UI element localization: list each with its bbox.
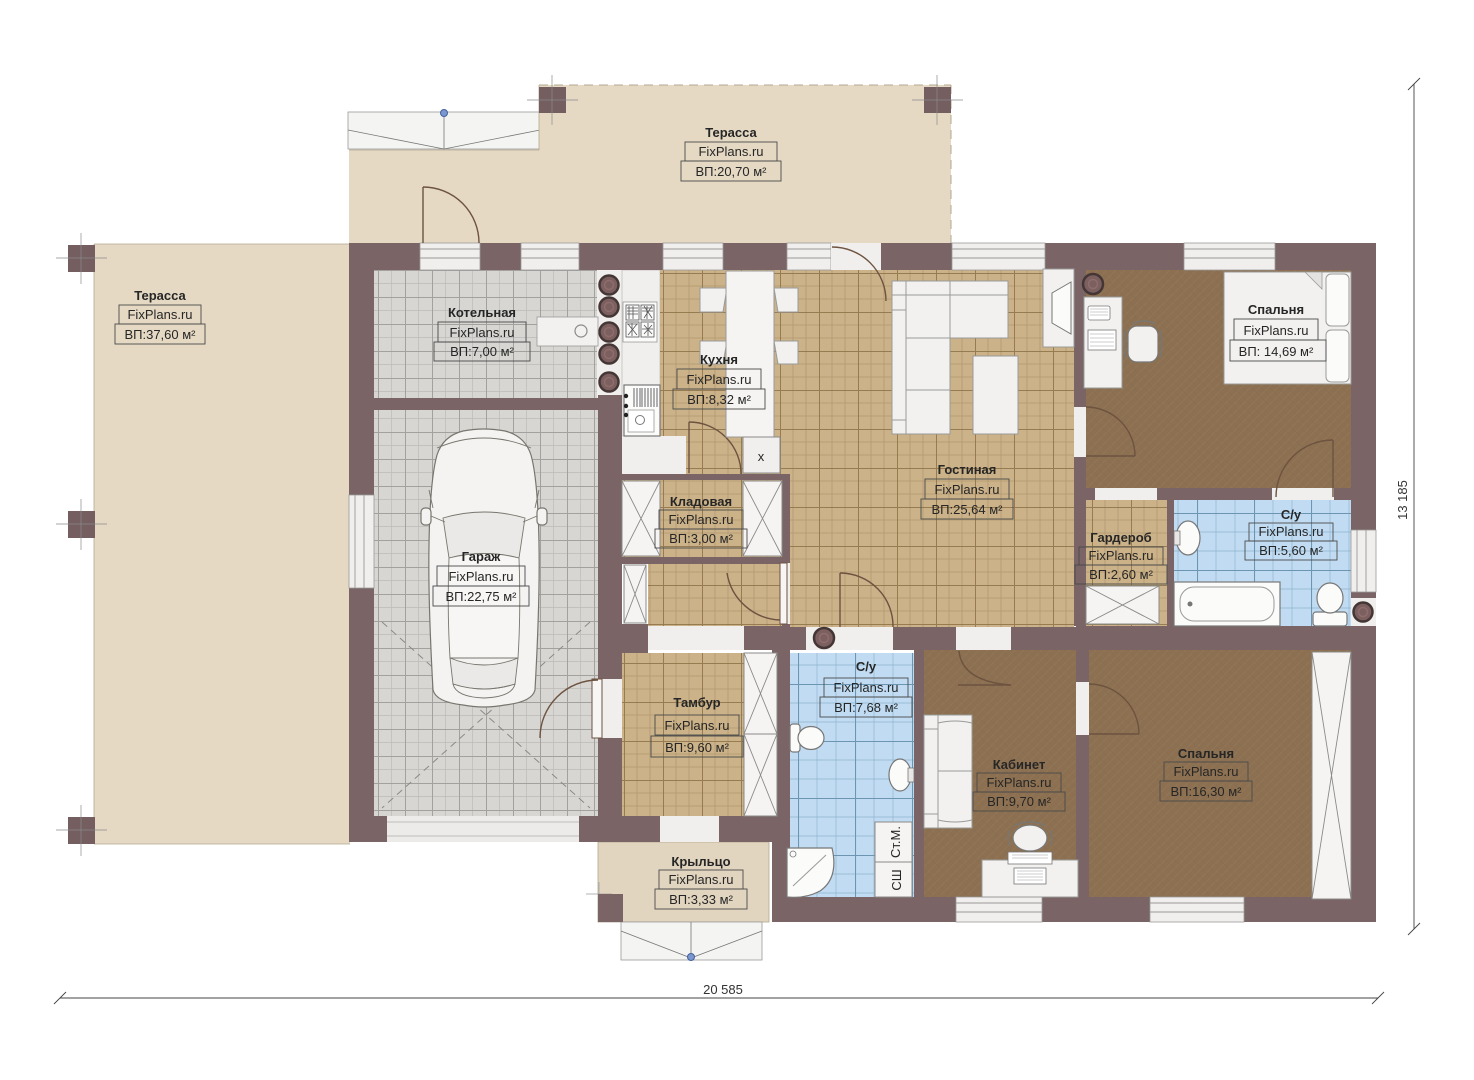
svg-text:FixPlans.ru: FixPlans.ru bbox=[986, 775, 1051, 790]
svg-text:ВП:25,64 м²: ВП:25,64 м² bbox=[931, 502, 1003, 517]
svg-text:СШ: СШ bbox=[889, 869, 904, 890]
svg-text:FixPlans.ru: FixPlans.ru bbox=[1258, 524, 1323, 539]
svg-text:FixPlans.ru: FixPlans.ru bbox=[1243, 323, 1308, 338]
svg-text:Гостиная: Гостиная bbox=[938, 462, 997, 477]
svg-text:ВП:3,00 м²: ВП:3,00 м² bbox=[669, 531, 733, 546]
svg-text:FixPlans.ru: FixPlans.ru bbox=[934, 482, 999, 497]
svg-text:ВП:8,32 м²: ВП:8,32 м² bbox=[687, 392, 751, 407]
svg-text:Гараж: Гараж bbox=[462, 549, 502, 564]
svg-text:Кладовая: Кладовая bbox=[670, 494, 732, 509]
svg-text:ВП:7,00 м²: ВП:7,00 м² bbox=[450, 344, 514, 359]
svg-text:FixPlans.ru: FixPlans.ru bbox=[448, 569, 513, 584]
svg-text:FixPlans.ru: FixPlans.ru bbox=[449, 325, 514, 340]
svg-text:FixPlans.ru: FixPlans.ru bbox=[1173, 764, 1238, 779]
svg-text:Спальня: Спальня bbox=[1248, 302, 1304, 317]
svg-text:С/у: С/у bbox=[856, 659, 877, 674]
svg-text:x: x bbox=[758, 449, 765, 464]
svg-text:Крыльцо: Крыльцо bbox=[671, 854, 730, 869]
svg-text:FixPlans.ru: FixPlans.ru bbox=[1088, 548, 1153, 563]
svg-text:FixPlans.ru: FixPlans.ru bbox=[686, 372, 751, 387]
svg-text:Гардероб: Гардероб bbox=[1090, 530, 1151, 545]
svg-text:FixPlans.ru: FixPlans.ru bbox=[127, 307, 192, 322]
svg-text:ВП: 14,69 м²: ВП: 14,69 м² bbox=[1239, 344, 1314, 359]
svg-text:Тамбур: Тамбур bbox=[673, 695, 720, 710]
svg-text:20 585: 20 585 bbox=[703, 982, 743, 997]
svg-text:ВП:3,33 м²: ВП:3,33 м² bbox=[669, 892, 733, 907]
svg-text:ВП:37,60 м²: ВП:37,60 м² bbox=[124, 327, 196, 342]
svg-text:FixPlans.ru: FixPlans.ru bbox=[833, 680, 898, 695]
svg-text:Ст.М.: Ст.М. bbox=[888, 826, 903, 858]
svg-text:Терасса: Терасса bbox=[134, 288, 186, 303]
svg-text:ВП:9,60 м²: ВП:9,60 м² bbox=[665, 740, 729, 755]
svg-text:ВП:22,75 м²: ВП:22,75 м² bbox=[445, 589, 517, 604]
svg-text:ВП:5,60 м²: ВП:5,60 м² bbox=[1259, 543, 1323, 558]
svg-text:ВП:7,68 м²: ВП:7,68 м² bbox=[834, 700, 898, 715]
svg-text:FixPlans.ru: FixPlans.ru bbox=[698, 144, 763, 159]
svg-text:ВП:9,70 м²: ВП:9,70 м² bbox=[987, 794, 1051, 809]
svg-text:Кабинет: Кабинет bbox=[993, 757, 1046, 772]
svg-text:FixPlans.ru: FixPlans.ru bbox=[668, 872, 733, 887]
svg-text:Спальня: Спальня bbox=[1178, 746, 1234, 761]
svg-text:ВП:16,30 м²: ВП:16,30 м² bbox=[1170, 784, 1242, 799]
svg-text:ВП:20,70 м²: ВП:20,70 м² bbox=[695, 164, 767, 179]
svg-text:Кухня: Кухня bbox=[700, 352, 738, 367]
svg-text:FixPlans.ru: FixPlans.ru bbox=[664, 718, 729, 733]
svg-text:Котельная: Котельная bbox=[448, 305, 516, 320]
svg-text:ВП:2,60 м²: ВП:2,60 м² bbox=[1089, 567, 1153, 582]
svg-text:Терасса: Терасса bbox=[705, 125, 757, 140]
svg-text:FixPlans.ru: FixPlans.ru bbox=[668, 512, 733, 527]
svg-text:13 185: 13 185 bbox=[1395, 480, 1410, 520]
svg-text:С/у: С/у bbox=[1281, 507, 1302, 522]
